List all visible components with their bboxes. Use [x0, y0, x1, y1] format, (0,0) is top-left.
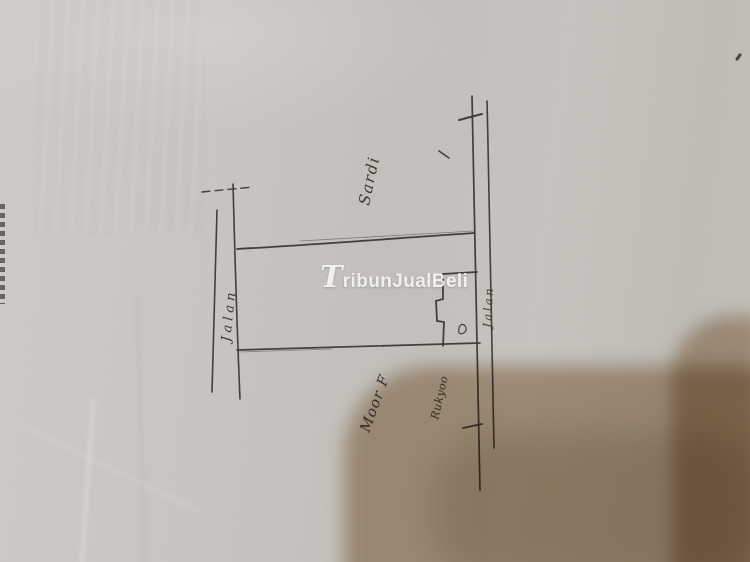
label-top-neighbor-sardi: Sardi — [355, 155, 383, 207]
small-dash-mark — [439, 151, 449, 158]
right-road-top-tick — [459, 114, 482, 120]
photo-of-land-sketch: Sardi Jalan Jalan Moor F Rukyoo TribunJu… — [0, 0, 750, 562]
label-right-road-jalan: Jalan — [480, 286, 496, 331]
camera-shadow-core — [430, 432, 750, 562]
plot-top-edge — [237, 233, 474, 249]
label-left-road-jalan: Jalan — [219, 288, 240, 346]
small-hook-mark — [459, 324, 466, 333]
left-road-end-tick — [202, 187, 253, 192]
watermark-tribunjualbeli: TribunJualBeli — [320, 260, 468, 295]
photo-edge-artifact — [0, 204, 5, 304]
left-road-outer-line — [212, 210, 217, 392]
